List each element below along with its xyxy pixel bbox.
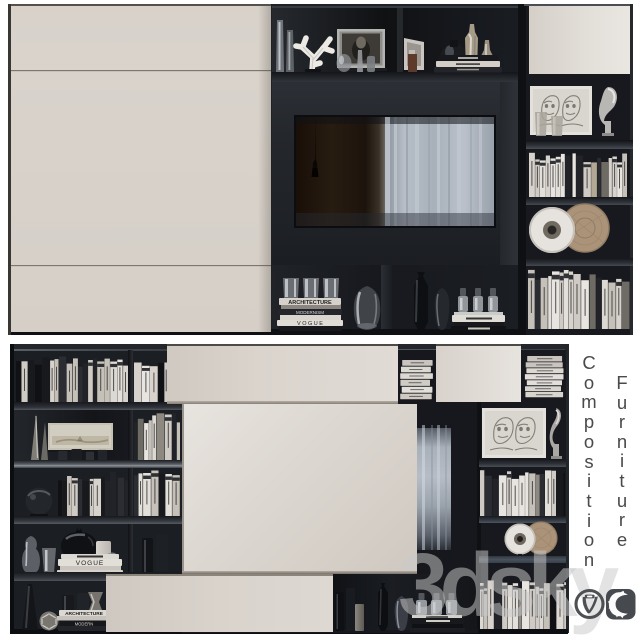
- svg-text:MODERNISM: MODERNISM: [296, 310, 324, 315]
- svg-text:VOGUE: VOGUE: [76, 560, 104, 567]
- svg-text:MODERN: MODERN: [75, 622, 94, 627]
